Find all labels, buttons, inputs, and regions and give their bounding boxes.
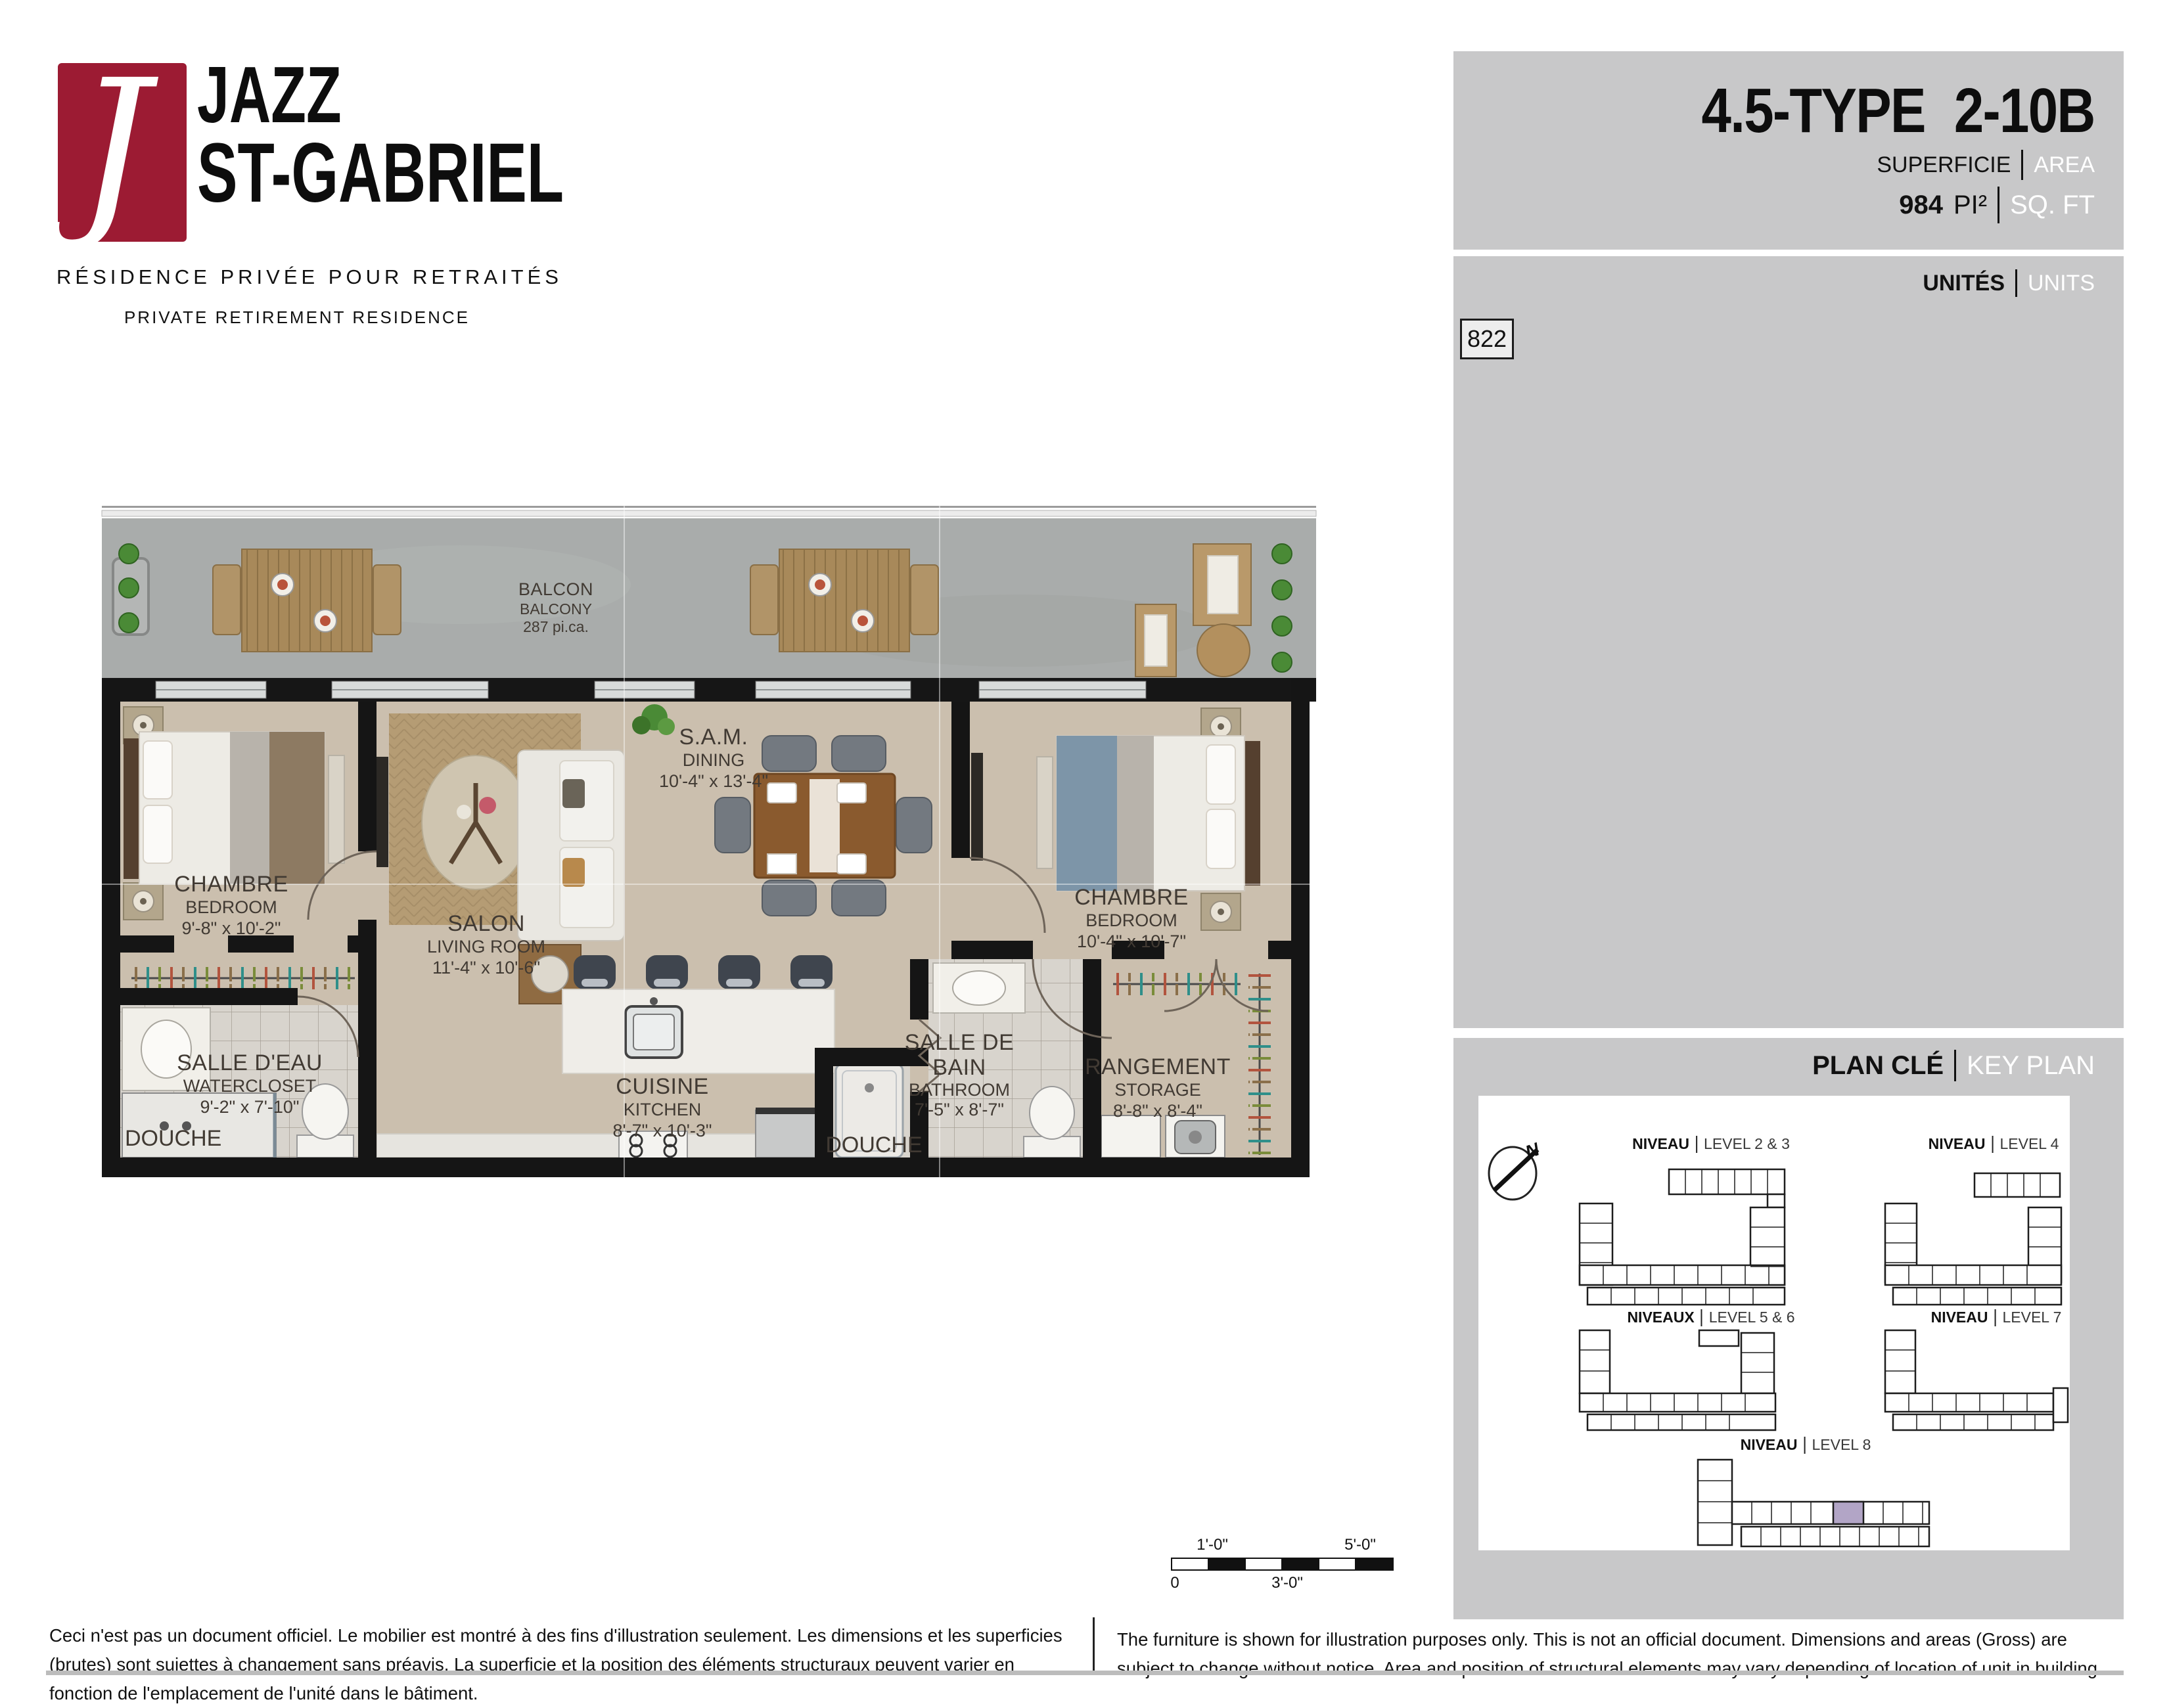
balcony: [102, 518, 1316, 678]
unit-type: 4.5-TYPE: [1702, 75, 1925, 147]
scale-label-1ft: 1'-0": [1197, 1536, 1228, 1554]
unit-header-panel: 4.5-TYPE 2-10B SUPERFICIE AREA 984 PI² S…: [1453, 51, 2124, 250]
scale-label-0: 0: [1170, 1574, 1179, 1592]
lounge-chairs: [1135, 544, 1251, 677]
separator-bar: [1998, 187, 1999, 223]
area-value: 984: [1899, 191, 1943, 220]
shower-label-watercloset: DOUCHE: [125, 1126, 221, 1152]
brand-name: JAZZ ST-GABRIEL: [197, 56, 564, 214]
key-plan-title-en: KEY PLAN: [1967, 1051, 2095, 1081]
area-value-row: 984 PI² SQ. FT: [1899, 187, 2095, 223]
scale-label-3ft: 3'-0": [1271, 1574, 1303, 1592]
disclaimer-separator: [1093, 1617, 1095, 1673]
unit-title: 4.5-TYPE 2-10B: [1702, 75, 2095, 147]
brand-tagline-fr: RÉSIDENCE PRIVÉE POUR RETRAITÉS: [57, 265, 537, 289]
units-panel: UNITÉS UNITS 822: [1453, 256, 2124, 1028]
keyplan-label-level-2-3: NIVEAULEVEL 2 & 3: [1632, 1135, 1790, 1153]
balcony-railing: [102, 506, 1316, 526]
brand-logo-mark: J: [58, 63, 187, 242]
room-label-dining: S.A.M. DINING 10'-4" x 13'-4": [659, 724, 768, 792]
brand-tagline-en: PRIVATE RETIREMENT RESIDENCE: [57, 307, 537, 328]
keyplan-label-level-4: NIVEAULEVEL 4: [1929, 1135, 2059, 1153]
room-label-balcony: BALCON BALCONY 287 pi.ca.: [518, 579, 593, 636]
logo-j-glyph: J: [76, 41, 150, 255]
room-label-living-room: SALON LIVING ROOM 11'-4" x 10'-6": [427, 910, 545, 979]
area-unit-en: SQ. FT: [2010, 191, 2095, 220]
area-label-fr: SUPERFICIE: [1877, 152, 2011, 178]
separator-bar: [2015, 269, 2017, 297]
units-label-en: UNITS: [2028, 271, 2095, 296]
room-label-bathroom: SALLE DE BAIN BATHROOM 7'-5" x 8'-7": [880, 1030, 1038, 1120]
keyplan-label-level-5-6: NIVEAUXLEVEL 5 & 6: [1627, 1309, 1794, 1326]
separator-bar: [2021, 150, 2023, 180]
unit-code: 2-10B: [1954, 75, 2095, 147]
area-unit-fr: PI²: [1953, 191, 1987, 220]
disclaimer-french: Ceci n'est pas un document officiel. Le …: [49, 1621, 1074, 1708]
room-label-bedroom-1: CHAMBRE BEDROOM 9'-8" x 10'-2": [174, 871, 288, 939]
separator-bar: [1954, 1050, 1956, 1081]
kitchen-furniture: [377, 955, 834, 1159]
area-label-en: AREA: [2034, 152, 2095, 178]
unit-number-badge: 822: [1460, 319, 1514, 359]
patio-table-2: [750, 549, 938, 652]
bedroom-1-furniture: [124, 707, 355, 989]
brand-line-2: ST-GABRIEL: [197, 133, 564, 214]
patio-table-1: [213, 549, 401, 652]
bottom-rule: [46, 1671, 2124, 1675]
key-plan-panel: PLAN CLÉ KEY PLAN: [1453, 1038, 2124, 1619]
key-plan-title-row: PLAN CLÉ KEY PLAN: [1812, 1050, 2095, 1081]
units-label-fr: UNITÉS: [1923, 271, 2005, 296]
room-label-storage: RANGEMENT STORAGE 8'-8" x 8'-4": [1085, 1054, 1231, 1122]
room-label-bedroom-2: CHAMBRE BEDROOM 10'-4" x 10'-7": [1074, 884, 1189, 953]
room-label-watercloset: SALLE D'EAU WATERCLOSET 9'-2" x 7'-10": [177, 1050, 323, 1118]
shower-label-bathroom: DOUCHE: [825, 1133, 922, 1158]
scale-label-5ft: 5'-0": [1344, 1536, 1376, 1554]
brand-line-1: JAZZ: [197, 56, 564, 133]
area-label-row: SUPERFICIE AREA: [1877, 150, 2095, 180]
window-wall-band: [102, 678, 1316, 702]
scale-bar: [1172, 1558, 1393, 1570]
keyplan-label-level-7: NIVEAULEVEL 7: [1931, 1309, 2062, 1326]
room-label-kitchen: CUISINE KITCHEN 8'-7" x 10'-3": [612, 1073, 712, 1142]
key-plan-title-fr: PLAN CLÉ: [1812, 1051, 1944, 1081]
keyplan-label-level-8: NIVEAULEVEL 8: [1741, 1436, 1871, 1454]
units-label-row: UNITÉS UNITS: [1923, 269, 2095, 297]
